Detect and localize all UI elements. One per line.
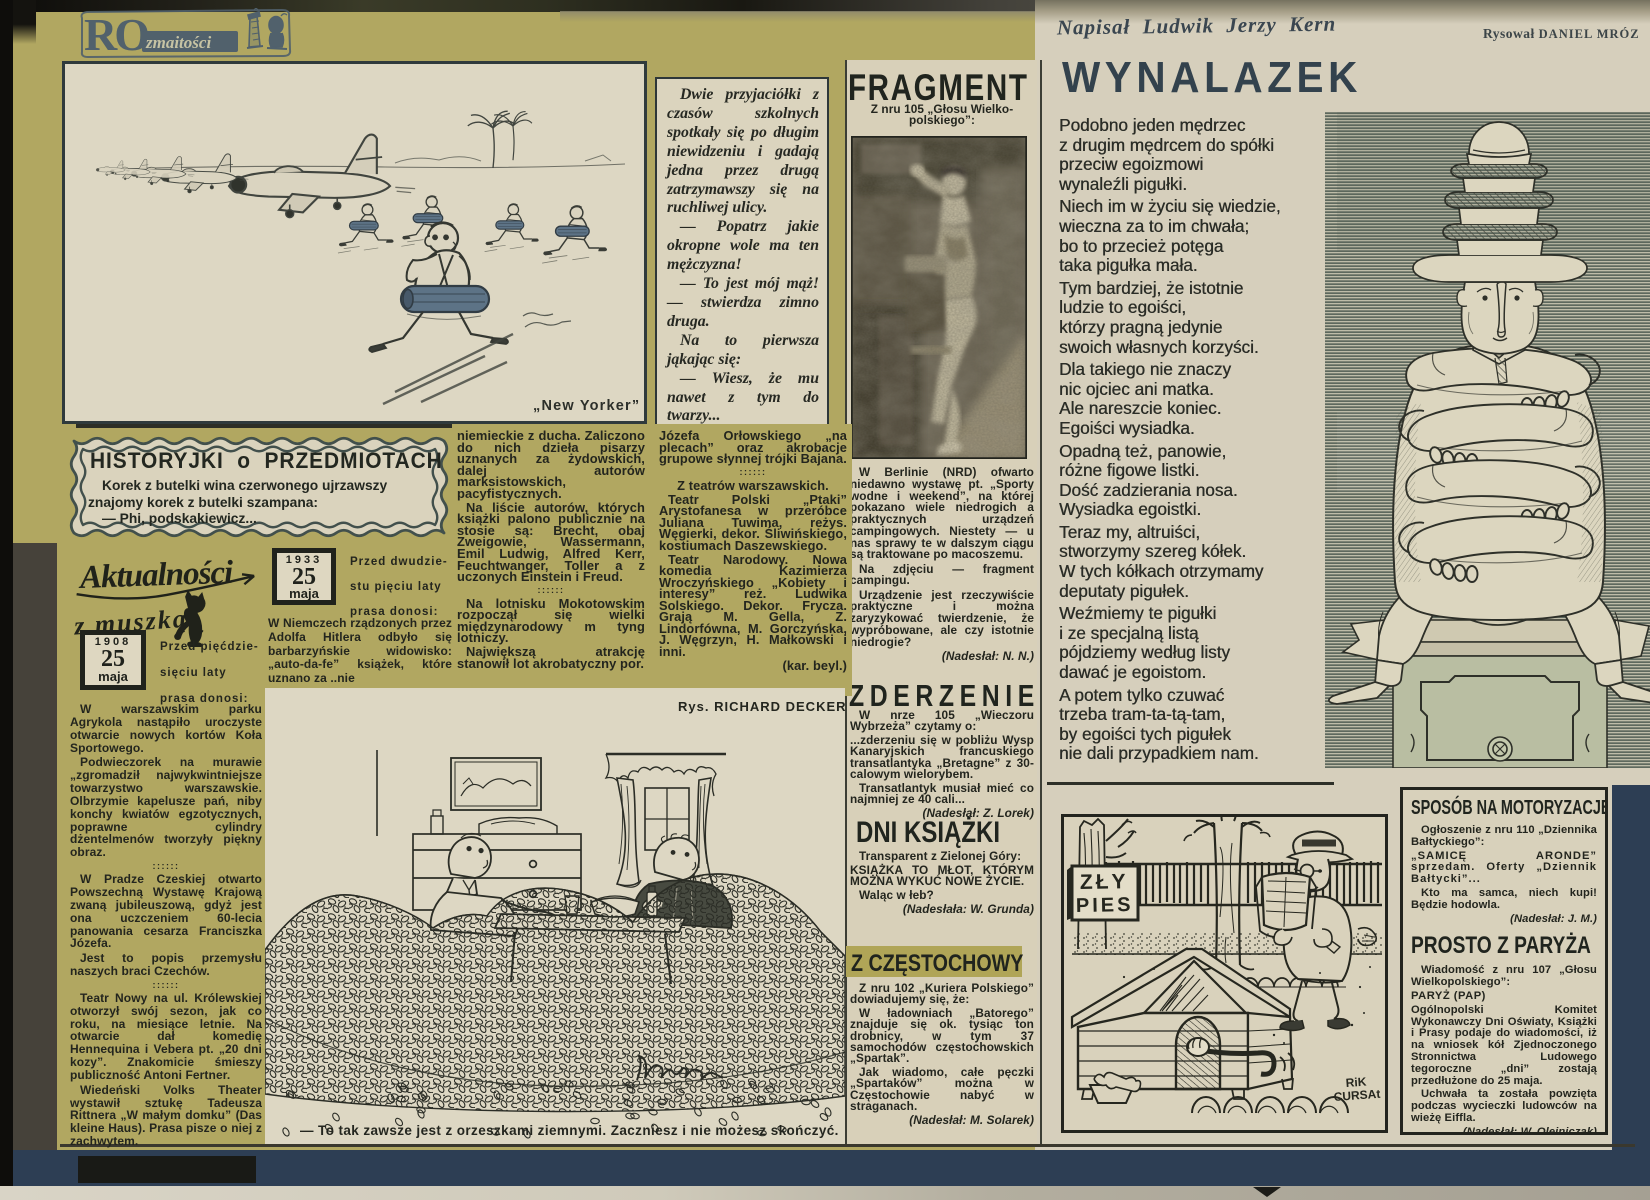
svg-text:CURSAt: CURSAt [1333,1087,1381,1104]
svg-text:PIES: PIES [1076,894,1134,917]
svg-text:RO: RO [84,9,148,58]
svg-text:„New Yorker”: „New Yorker” [533,398,640,414]
svg-text:ZŁY: ZŁY [1080,870,1129,894]
svg-text:Aktualności: Aktualności [77,555,234,596]
svg-text:zmaitości: zmaitości [145,33,211,52]
